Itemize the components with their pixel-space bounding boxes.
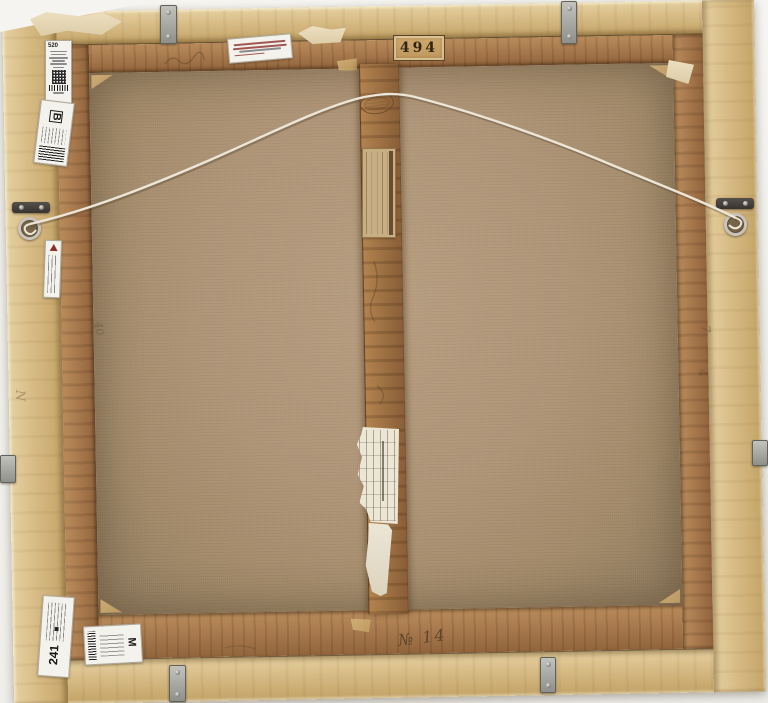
photo-back-of-framed-painting: 520 B 494 bbox=[0, 0, 768, 703]
hanging-wire bbox=[0, 0, 768, 703]
